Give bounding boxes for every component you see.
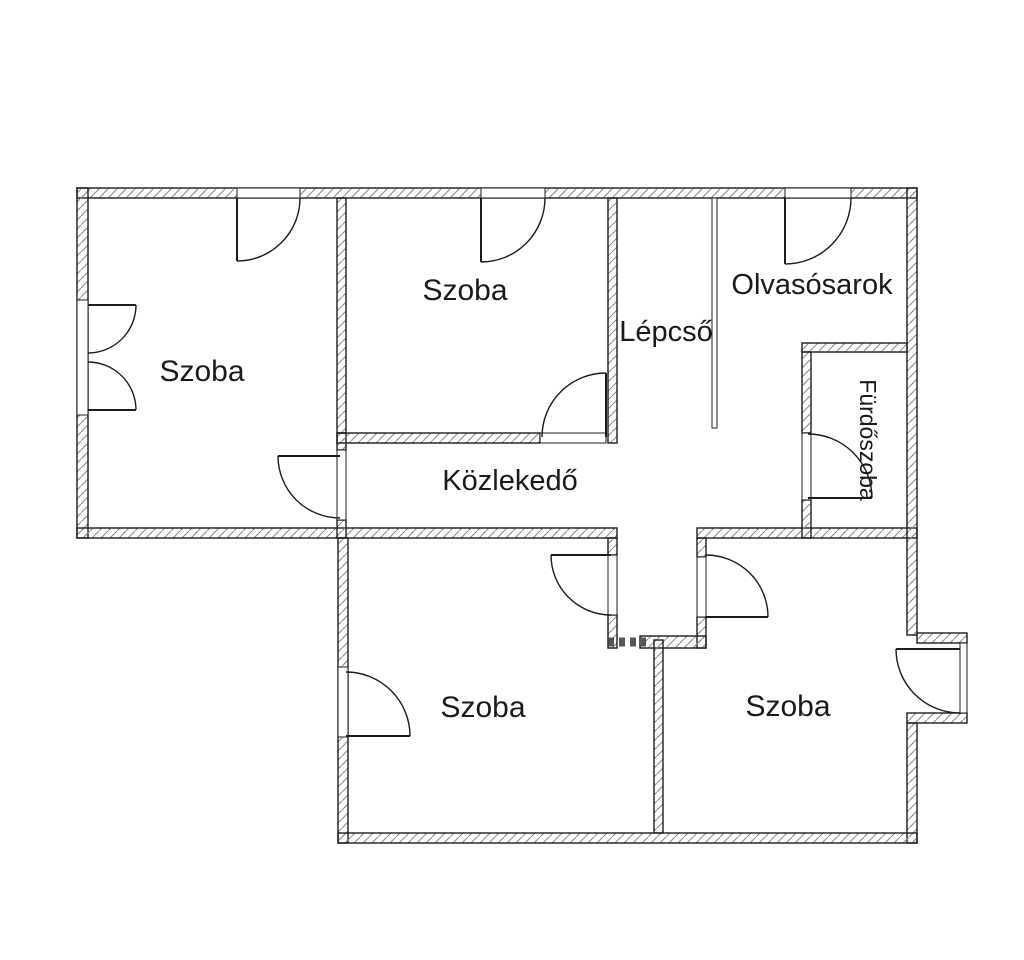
wall-middle-band-left [77, 528, 617, 538]
room-label-szoba-top-left: Szoba [159, 355, 244, 388]
room-label-lepcso: Lépcső [619, 316, 713, 348]
room-label-szoba-bottom-left: Szoba [440, 691, 525, 724]
opening-top-door-middle-room [481, 188, 545, 198]
wall-bottom-rooms-divider [654, 640, 663, 833]
staircase-thin-wall [712, 198, 717, 428]
wall-passage-left-upper [608, 538, 617, 555]
wall-bathroom-left-upper [802, 352, 811, 433]
bay-window-thin-wall [960, 643, 967, 713]
room-label-olvasosarok: Olvasósarok [731, 269, 893, 301]
wall-topleft-room-right [337, 198, 346, 433]
opening-top-door-left-room [237, 188, 300, 198]
wall-bottom-exterior [338, 833, 917, 843]
room-label-furdoszoba: Fürdőszoba [855, 379, 881, 501]
wall-right-exterior-lower [907, 723, 917, 843]
floor-plan-drawing: Szoba Szoba Lépcső Olvasósarok Fürdőszob… [0, 0, 1024, 960]
room-label-szoba-top-middle: Szoba [422, 274, 507, 307]
opening-door-bathroom [802, 433, 811, 500]
wall-passage-bottom [640, 636, 706, 648]
wall-passage-right-upper [697, 538, 706, 557]
opening-french-door-left-wall [77, 300, 88, 415]
opening-door-bottomleft-room-left [338, 667, 348, 737]
wall-bay-bottom [907, 713, 967, 723]
room-label-szoba-bottom-right: Szoba [745, 690, 830, 723]
floor-plan-canvas: Szoba Szoba Lépcső Olvasósarok Fürdőszob… [0, 0, 1024, 960]
wall-bathroom-top [802, 343, 907, 352]
wall-right-exterior-upper [907, 188, 917, 635]
room-label-kozlekedo: Közlekedő [442, 465, 577, 497]
wall-bathroom-left-lower [802, 500, 811, 538]
wall-corridor-left-jamb-bottom [337, 520, 346, 538]
opening-door-topleft-to-corridor [337, 450, 346, 520]
wall-bay-top [917, 633, 967, 643]
wall-middle-room-bottom [337, 433, 540, 443]
wall-middle-room-right [608, 198, 617, 443]
opening-door-passage-right [697, 557, 706, 617]
opening-door-passage-left [608, 555, 617, 615]
opening-door-middle-room-bottom [540, 433, 606, 443]
opening-top-door-olvasosarok [785, 188, 851, 198]
